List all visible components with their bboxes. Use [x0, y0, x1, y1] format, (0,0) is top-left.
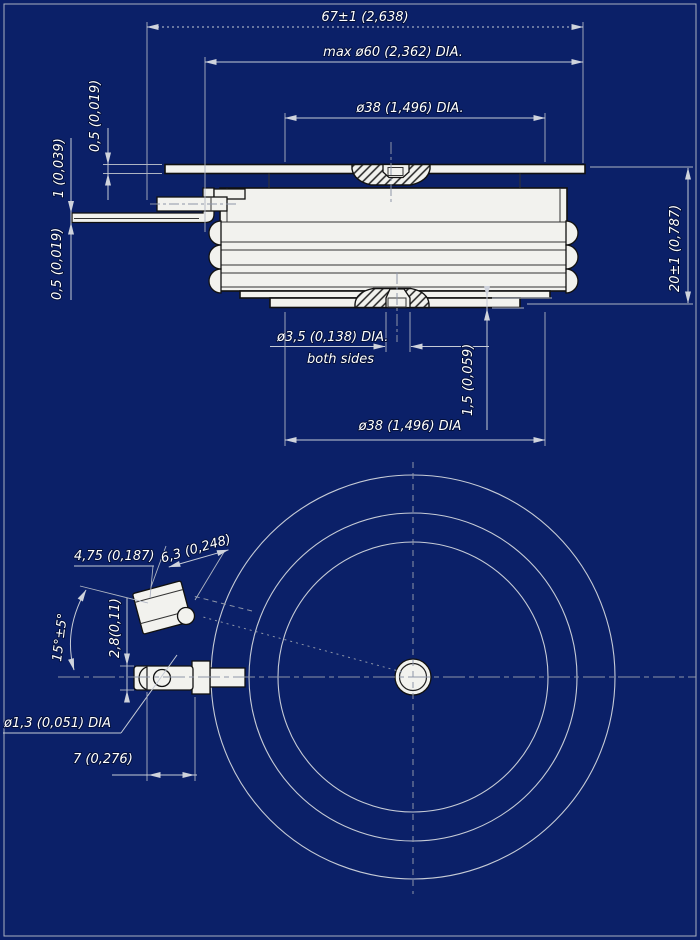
dim-tab-width-label: 6,3 (0,248): [159, 532, 233, 566]
dim-tab-dia: 2,8(0,11): [108, 598, 134, 702]
dim-hole-dia-label: ø1,3 (0,051) DIA: [3, 716, 111, 731]
dim-lead2-thickness-label: 0,5 (0,019): [50, 228, 65, 300]
dim-pole-offset-label: 1,5 (0,059): [461, 344, 476, 416]
dim-angle-label: 15°±5°: [50, 612, 71, 662]
dim-top-contact-label: ø38 (1,496) DIA.: [355, 101, 463, 116]
dim-angle: 15°±5°: [50, 590, 86, 670]
blueprint-page: 67±1 (2,638) max ø60 (2,362) DIA. ø38 (1…: [0, 0, 700, 940]
dim-gate-hole-note: both sides: [307, 352, 374, 367]
dim-tab-dia-label: 2,8(0,11): [108, 598, 123, 658]
section-view: 67±1 (2,638) max ø60 (2,362) DIA. ø38 (1…: [50, 10, 693, 446]
dim-plate-thickness: 0,5 (0,019): [88, 80, 162, 200]
dim-gate-hole: ø3,5 (0,138) DIA. both sides: [270, 312, 489, 367]
engineering-drawing: 67±1 (2,638) max ø60 (2,362) DIA. ø38 (1…: [0, 0, 700, 940]
dim-tab-length-label: 7 (0,276): [73, 752, 133, 767]
dim-lead-thickness: 1 (0,039) 0,5 (0,019): [50, 138, 71, 300]
fins-left: [209, 221, 221, 293]
gate-pin-hole: [178, 608, 195, 625]
terminal-axis-leader: [203, 617, 402, 672]
dim-tab-setback-label: 4,75 (0,187): [74, 549, 154, 564]
dim-max-dia-label: max ø60 (2,362) DIA.: [323, 45, 463, 60]
dim-overall-width-label: 67±1 (2,638): [321, 10, 408, 25]
dim-tab-length: 7 (0,276): [73, 692, 197, 781]
dim-gate-hole-label: ø3,5 (0,138) DIA.: [276, 330, 388, 345]
fins-right: [566, 221, 578, 293]
dim-top-contact: ø38 (1,496) DIA.: [285, 101, 545, 162]
dim-lead-thickness-label: 1 (0,039): [52, 138, 67, 198]
bottom-view: 6,3 (0,248) 4,75 (0,187) 15°±5° 2,8(0,11…: [3, 462, 696, 894]
ceramic-body: [220, 188, 567, 291]
dim-bottom-contact-label: ø38 (1,496) DIA: [358, 419, 462, 434]
dim-height-label: 20±1 (0,787): [668, 205, 683, 292]
dim-plate-thickness-label: 0,5 (0,019): [88, 80, 103, 152]
